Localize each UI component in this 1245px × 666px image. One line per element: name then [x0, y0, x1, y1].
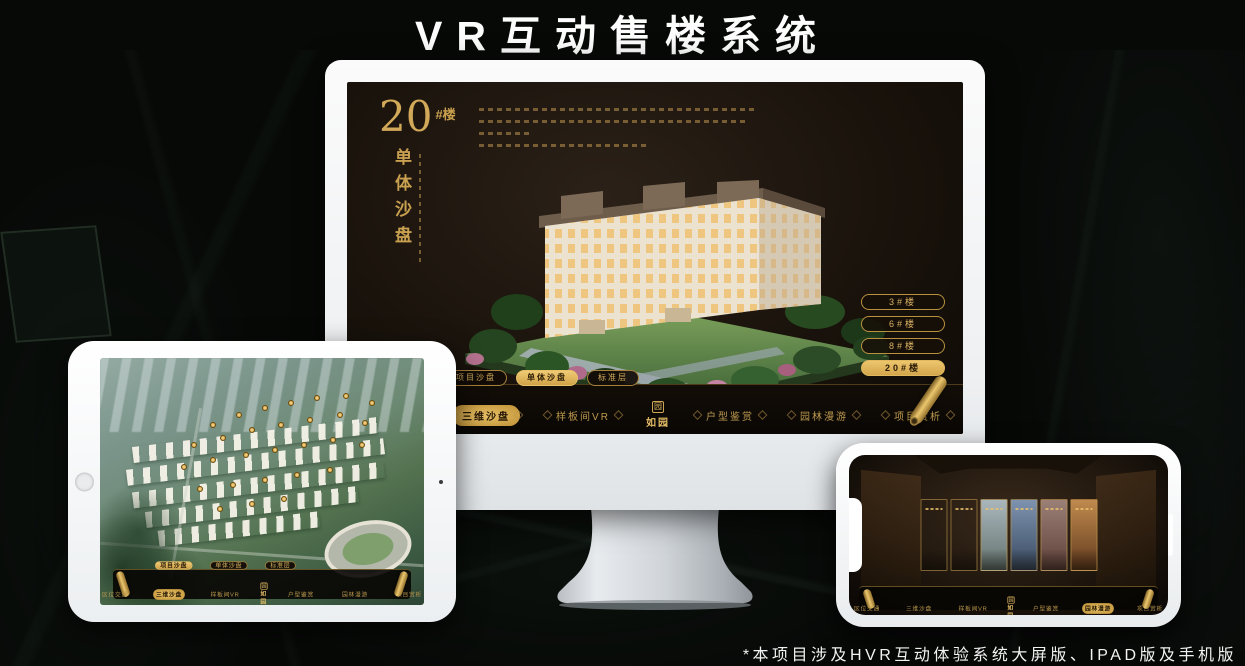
building-marker[interactable]	[359, 442, 365, 448]
brand-logo: 园 如园	[260, 582, 267, 605]
phone-screen: 区位交通 三维沙盘 样板间VR 园 如园 户型鉴赏 园林漫游 项目赏析	[849, 455, 1168, 615]
description-text-block	[479, 108, 757, 156]
floor-button-20[interactable]: 20#楼	[861, 360, 945, 376]
phone-device: 区位交通 三维沙盘 样板间VR 园 如园 户型鉴赏 园林漫游 项目赏析	[836, 443, 1181, 627]
sandbox-tabs: 项目沙盘 单体沙盘 标准层	[445, 370, 639, 386]
building-marker[interactable]	[272, 447, 278, 453]
building-marker[interactable]	[327, 467, 333, 473]
nav-item-3d-sandbox[interactable]: 三维沙盘	[904, 603, 936, 614]
building-marker[interactable]	[236, 412, 242, 418]
nav-item-location[interactable]: 区位交通	[100, 589, 131, 600]
building-marker[interactable]	[294, 472, 300, 478]
brand-logo: 园 如园	[646, 401, 670, 429]
nav-item-3d-sandbox[interactable]: 三维沙盘	[153, 589, 185, 600]
home-indicator	[1168, 514, 1173, 556]
background-photo-frame	[0, 225, 112, 343]
building-marker[interactable]	[262, 405, 268, 411]
building-marker[interactable]	[220, 435, 226, 441]
tablet-navbar: 项目沙盘 单体沙盘 标准层 区位交通 三维沙盘 样板间VR 园 如园 户型鉴赏 …	[113, 569, 411, 599]
building-marker[interactable]	[191, 442, 197, 448]
gallery-panel[interactable]	[1010, 499, 1037, 571]
building-marker[interactable]	[181, 464, 187, 470]
gallery-panel[interactable]	[920, 499, 947, 571]
building-marker[interactable]	[301, 442, 307, 448]
poster-stage: VR互动售楼系统 20 #楼 单体沙盘	[0, 0, 1245, 666]
building-marker[interactable]	[307, 417, 313, 423]
building-marker[interactable]	[369, 400, 375, 406]
floor-button-8[interactable]: 8#楼	[861, 338, 945, 354]
description-line	[479, 144, 647, 147]
floor-button-group: 3#楼 6#楼 8#楼 20#楼	[861, 294, 945, 376]
building-marker[interactable]	[249, 501, 255, 507]
building-marker[interactable]	[262, 477, 268, 483]
building-marker[interactable]	[343, 393, 349, 399]
gallery-panel[interactable]	[1070, 499, 1097, 571]
building-marker[interactable]	[243, 452, 249, 458]
tablet-device: 项目沙盘 单体沙盘 标准层 区位交通 三维沙盘 样板间VR 园 如园 户型鉴赏 …	[68, 341, 456, 622]
nav-item-garden-tour[interactable]: 园林漫游	[790, 405, 858, 426]
description-line	[479, 132, 531, 135]
tablet-screen: 项目沙盘 单体沙盘 标准层 区位交通 三维沙盘 样板间VR 园 如园 户型鉴赏 …	[100, 358, 424, 605]
nav-item-showroom-vr[interactable]: 样板间VR	[956, 603, 991, 614]
nav-item-showroom-vr[interactable]: 样板间VR	[208, 589, 243, 600]
floor-button-3[interactable]: 3#楼	[861, 294, 945, 310]
description-line	[479, 108, 757, 111]
gallery-panel[interactable]	[950, 499, 977, 571]
building-marker[interactable]	[230, 482, 236, 488]
building-marker[interactable]	[249, 427, 255, 433]
building-marker[interactable]	[288, 400, 294, 406]
interior-wall	[861, 470, 921, 596]
building-marker[interactable]	[217, 506, 223, 512]
hero-block: 20 #楼 单体沙盘	[379, 96, 456, 264]
floor-button-6[interactable]: 6#楼	[861, 316, 945, 332]
nav-item-3d-sandbox[interactable]: 三维沙盘	[452, 405, 520, 426]
nav-item-location[interactable]: 区位交通	[852, 603, 884, 614]
phone-nav-items: 区位交通 三维沙盘 样板间VR 园 如园 户型鉴赏 园林漫游 项目赏析	[859, 592, 1159, 615]
pavilion-silhouette	[914, 455, 1104, 489]
building-marker[interactable]	[330, 437, 336, 443]
tab-project-sandbox[interactable]: 项目沙盘	[155, 561, 193, 569]
phone-notch	[849, 498, 862, 572]
tablet-camera	[439, 480, 443, 484]
building-marker[interactable]	[362, 420, 368, 426]
scene-gallery	[920, 499, 1097, 571]
description-line	[479, 120, 747, 123]
brand-logo-mark: 园	[260, 582, 267, 589]
tablet-nav: 区位交通 三维沙盘 样板间VR 园 如园 户型鉴赏 园林漫游 项目赏析	[113, 578, 411, 605]
building-number-suffix: #楼	[435, 104, 455, 123]
tab-single-sandbox[interactable]: 单体沙盘	[516, 370, 578, 386]
building-marker[interactable]	[210, 422, 216, 428]
brand-logo-mark: 园	[652, 401, 664, 413]
building-marker[interactable]	[337, 412, 343, 418]
tab-standard-floor[interactable]: 标准层	[265, 561, 296, 569]
building-marker[interactable]	[197, 486, 203, 492]
brand-logo-text: 如园	[646, 414, 670, 429]
building-marker[interactable]	[281, 496, 287, 502]
hero-vertical-title: 单体沙盘	[389, 148, 414, 264]
brand-logo-text: 如园	[260, 590, 267, 605]
building-marker[interactable]	[210, 457, 216, 463]
tablet-tabs: 项目沙盘 单体沙盘 标准层	[155, 560, 306, 571]
brand-logo: 园 如园	[1007, 596, 1014, 615]
tablet-home-button[interactable]	[75, 472, 94, 491]
nav-item-showroom-vr[interactable]: 样板间VR	[546, 405, 620, 426]
tab-standard-floor[interactable]: 标准层	[587, 370, 639, 386]
footnote: *本项目涉及HVR互动体验系统大屏版、IPAD版及手机版	[743, 641, 1237, 665]
nav-item-garden-tour[interactable]: 园林漫游	[1082, 603, 1114, 614]
building-marker[interactable]	[278, 422, 284, 428]
interior-wall	[1096, 470, 1156, 596]
gallery-panel[interactable]	[980, 499, 1007, 571]
nav-item-garden-tour[interactable]: 园林漫游	[339, 589, 371, 600]
tab-single-sandbox[interactable]: 单体沙盘	[210, 561, 248, 569]
phone-navbar: 区位交通 三维沙盘 样板间VR 园 如园 户型鉴赏 园林漫游 项目赏析	[859, 586, 1159, 610]
brand-logo-mark: 园	[1007, 596, 1014, 603]
monitor-stand	[545, 508, 765, 612]
nav-item-unit-plans[interactable]: 户型鉴赏	[696, 405, 764, 426]
hero-caption-dashes	[419, 154, 421, 264]
brand-logo-text: 如园	[1007, 604, 1014, 615]
nav-item-unit-plans[interactable]: 户型鉴赏	[1030, 603, 1062, 614]
page-title: VR互动售楼系统	[0, 2, 1245, 62]
nav-item-unit-plans[interactable]: 户型鉴赏	[285, 589, 317, 600]
gallery-panel[interactable]	[1040, 499, 1067, 571]
building-marker[interactable]	[314, 395, 320, 401]
building-number: 20	[379, 96, 432, 138]
